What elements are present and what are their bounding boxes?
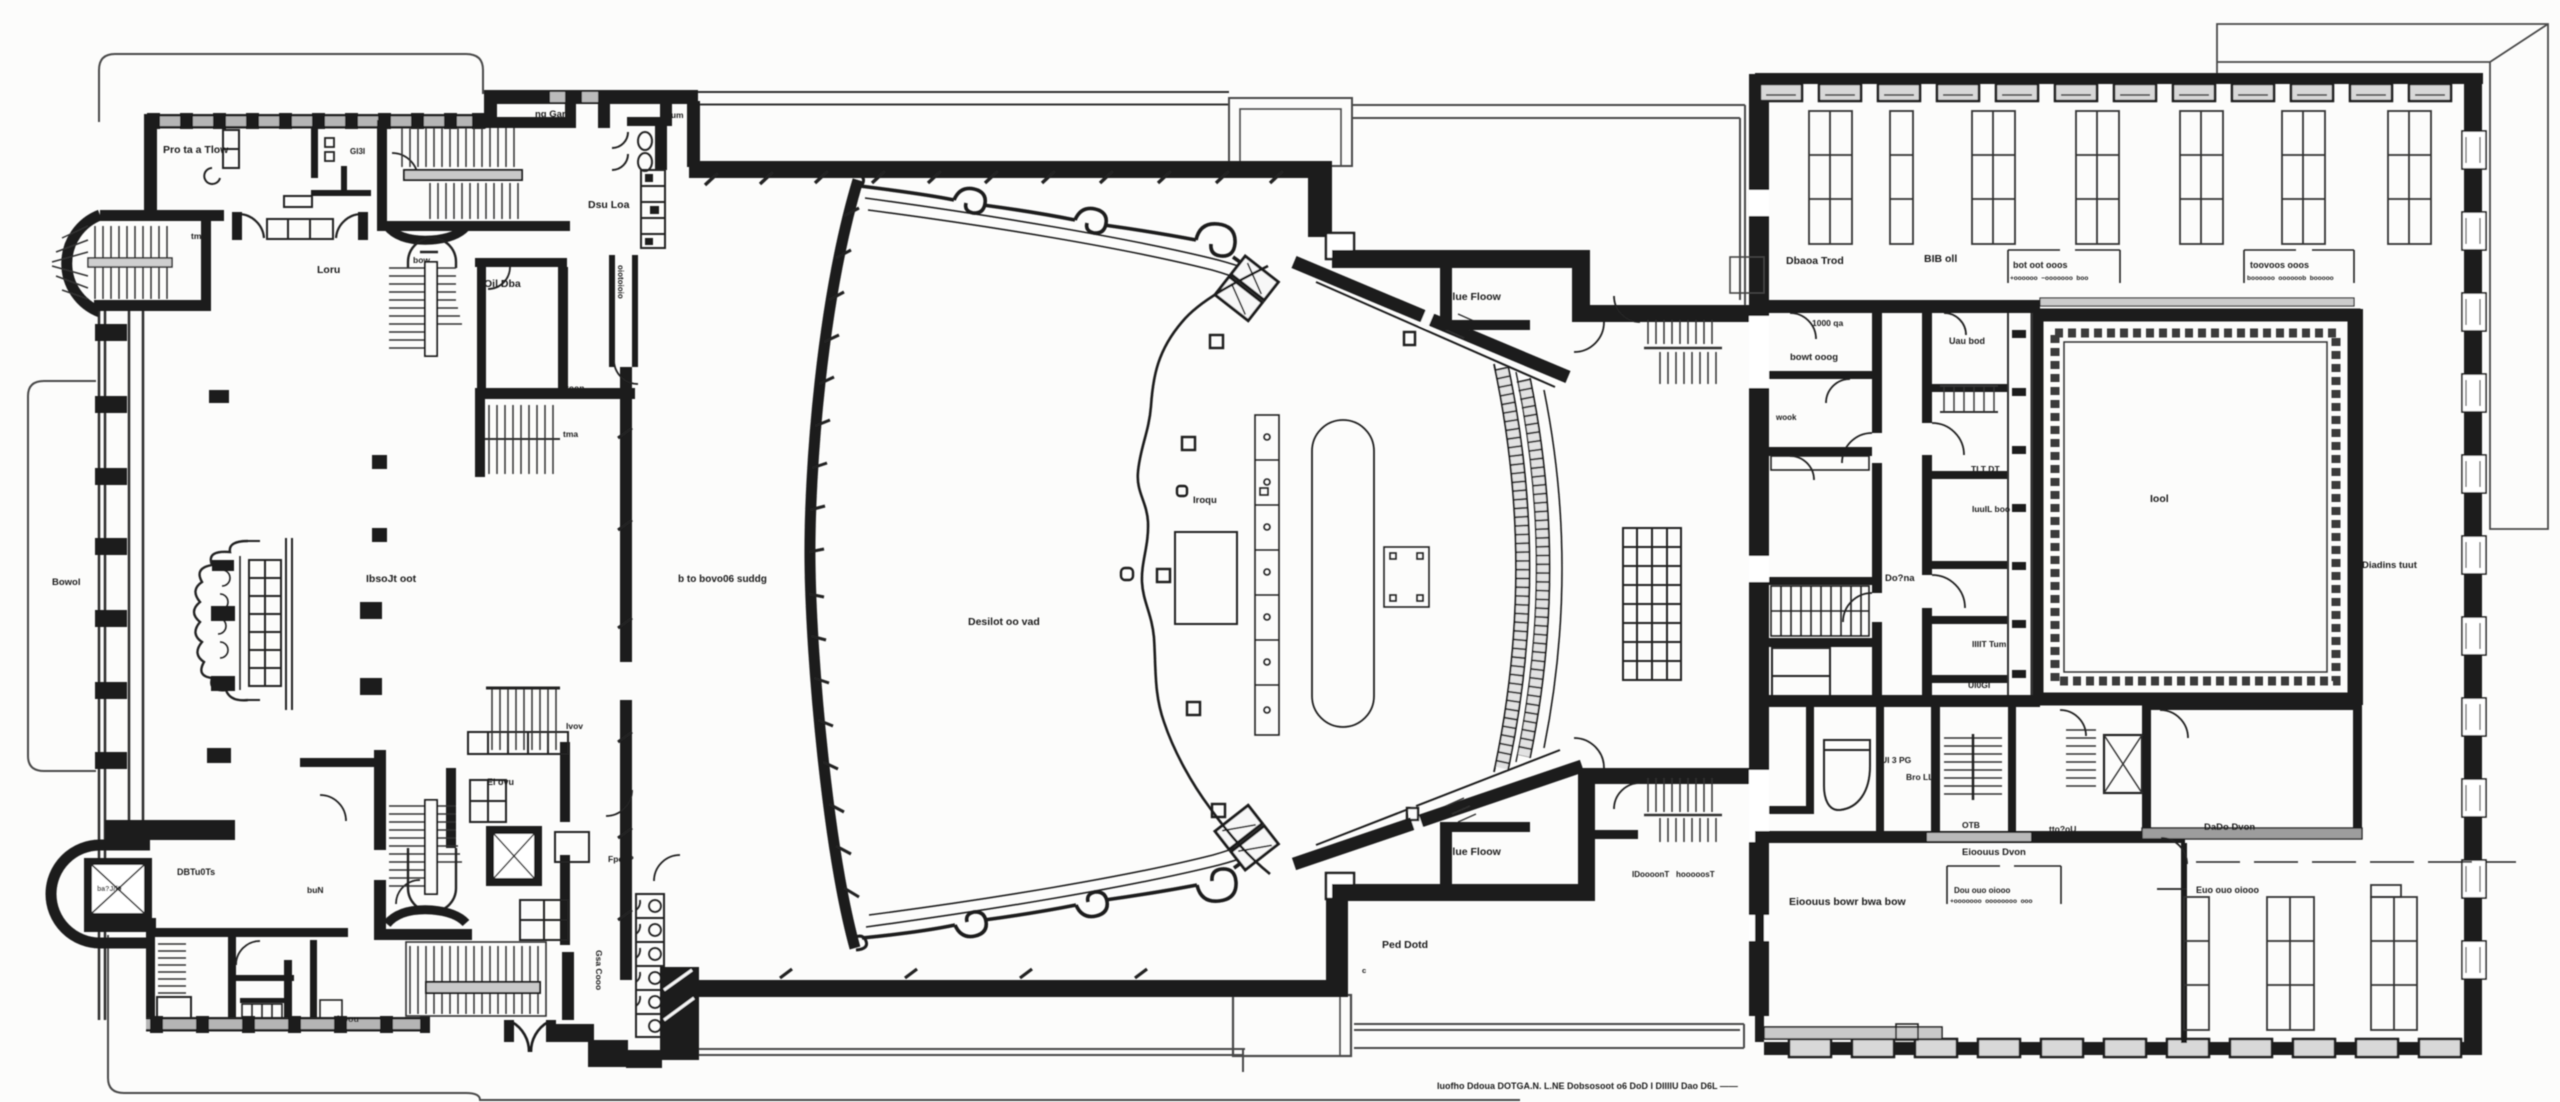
svg-text:toovoos ooos: toovoos ooos xyxy=(2250,260,2309,270)
svg-text:Bro LL: Bro LL xyxy=(1906,772,1933,782)
svg-text:Gsa Cooo: Gsa Cooo xyxy=(594,950,604,990)
svg-text:Uau bod: Uau bod xyxy=(1949,336,1985,346)
svg-text:ng Gar: ng Gar xyxy=(535,109,566,120)
svg-text:+oooooo −ooooooo boo: +oooooo −ooooooo boo xyxy=(2010,275,2088,282)
svg-text:Fpou?: Fpou? xyxy=(608,854,634,864)
svg-text:GI3I: GI3I xyxy=(350,147,365,156)
svg-text:tma: tma xyxy=(563,429,578,439)
svg-text:b to bovo06 suddg: b to bovo06 suddg xyxy=(678,574,767,585)
svg-text:Iool: Iool xyxy=(2150,493,2169,505)
svg-text:Loou: Loou xyxy=(337,1014,359,1024)
svg-text:Dsu Loa: Dsu Loa xyxy=(588,199,630,211)
svg-text:Dbaoa Trod: Dbaoa Trod xyxy=(1786,255,1844,267)
svg-text:Eioouus Dvon: Eioouus Dvon xyxy=(1962,847,2026,858)
svg-text:Loru: Loru xyxy=(317,264,340,276)
svg-text:boooooo oooooob booooo: boooooo oooooob booooo xyxy=(2247,275,2334,282)
svg-text:UI0GI: UI0GI xyxy=(1968,680,1990,690)
svg-text:wook: wook xyxy=(1775,413,1797,422)
svg-text:Dou ouo oiooo: Dou ouo oiooo xyxy=(1954,886,2011,895)
svg-text:Ivov: Ivov xyxy=(566,721,583,731)
svg-text:c: c xyxy=(1362,966,1366,975)
svg-text:IbsoJt oot: IbsoJt oot xyxy=(366,573,417,585)
svg-text:El ovu: El ovu xyxy=(487,777,514,787)
svg-text:IIIIT Tum: IIIIT Tum xyxy=(1972,639,2007,649)
svg-text:Iroqu: Iroqu xyxy=(1193,495,1217,506)
svg-text:buN: buN xyxy=(307,885,324,895)
svg-text:tto?oU: tto?oU xyxy=(2049,824,2076,834)
svg-text:Pro ta a Tlow: Pro ta a Tlow xyxy=(163,144,229,156)
svg-text:Flue Floow: Flue Floow xyxy=(1446,291,1502,303)
svg-text:bow: bow xyxy=(413,255,430,265)
svg-text:IuuIL boo: IuuIL boo xyxy=(1972,504,2010,514)
svg-text:1000 qa: 1000 qa xyxy=(1812,318,1843,328)
svg-text:Ped Dotd: Ped Dotd xyxy=(1382,939,1428,951)
svg-text:Euo ouo oiooo: Euo ouo oiooo xyxy=(2196,885,2259,895)
svg-text:TLT DT: TLT DT xyxy=(1971,464,2000,474)
svg-text:DaDo Dvon: DaDo Dvon xyxy=(2204,822,2255,833)
svg-text:Bowol: Bowol xyxy=(52,577,81,588)
svg-text:oiotoioio: oiotoioio xyxy=(616,265,625,299)
svg-text:bot oot ooos: bot oot ooos xyxy=(2013,260,2067,270)
svg-text:IDoooonT hooooosT: IDoooonT hooooosT xyxy=(1632,870,1715,879)
svg-text:BIB oll: BIB oll xyxy=(1924,253,1957,265)
svg-text:Oil Dba: Oil Dba xyxy=(484,278,521,290)
svg-text:UI 3 PG: UI 3 PG xyxy=(1881,755,1912,765)
svg-text:tma: tma xyxy=(191,231,206,241)
svg-text:+ooooooo oooooooo ooo: +ooooooo oooooooo ooo xyxy=(1950,898,2033,905)
svg-text:toon: toon xyxy=(566,383,584,393)
svg-text:tum: tum xyxy=(668,110,684,120)
svg-text:Eioouus bowr bwa bow: Eioouus bowr bwa bow xyxy=(1789,896,1906,908)
svg-text:OTB: OTB xyxy=(1962,820,1980,830)
svg-text:ba?J/f9: ba?J/f9 xyxy=(97,886,122,893)
svg-text:Flue Floow: Flue Floow xyxy=(1446,846,1502,858)
svg-text:Desilot oo vad: Desilot oo vad xyxy=(968,616,1040,628)
svg-text:Do?na: Do?na xyxy=(1885,573,1915,584)
svg-text:Diadins tuut: Diadins tuut xyxy=(2362,560,2418,571)
svg-text:DBTu0Ts: DBTu0Ts xyxy=(177,867,215,877)
svg-text:Iuofho Ddoua DOTGA.N. L.NE Dob: Iuofho Ddoua DOTGA.N. L.NE Dobsosoot o6 … xyxy=(1437,1081,1738,1091)
svg-text:bowt ooog: bowt ooog xyxy=(1790,352,1838,363)
